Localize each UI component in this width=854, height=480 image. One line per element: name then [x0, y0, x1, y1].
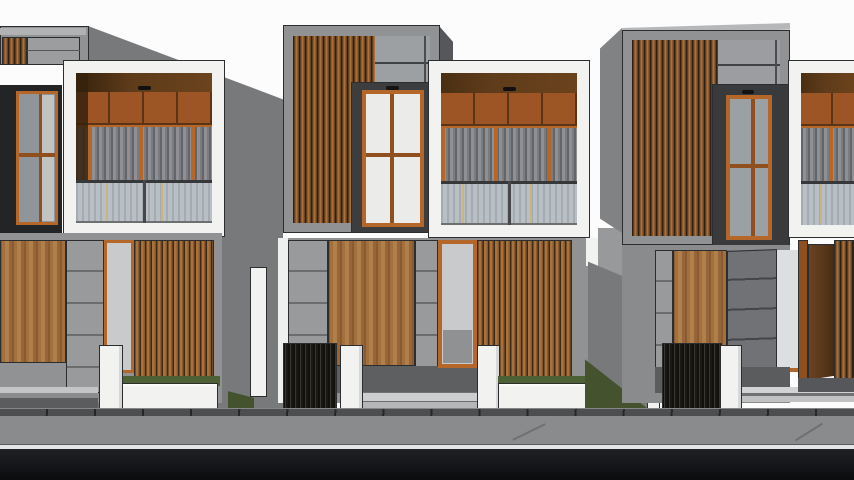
house-2-railing-center-post [508, 181, 511, 225]
house-2-balcony-post-3 [547, 126, 551, 181]
house-4-balcony-corrugated [801, 126, 854, 181]
house-2-balcony-wood-panels [441, 93, 577, 126]
gap2-post-top [586, 238, 598, 266]
house-1-window-stile [39, 94, 42, 222]
house-4-balcony-wood-panels [801, 93, 854, 126]
house-2-gate-pillar-left [340, 345, 363, 411]
render-viewport [0, 0, 854, 480]
house-3-slat-screen [632, 40, 718, 236]
house-3-upper-panel-seam-1 [718, 64, 780, 66]
asphalt-foreground [0, 449, 854, 480]
house-1-balcony-post-3 [191, 125, 195, 180]
house-4-railing-tan-line [820, 184, 822, 223]
house-2-glass-door-lower [443, 330, 472, 363]
house-1-window-pane-right [42, 95, 54, 221]
house-1-railing-tan-line-1 [106, 183, 108, 221]
house-2-dark-slat-fence [283, 343, 337, 412]
house-2-balcony-vent [503, 87, 516, 91]
house-1-window-rail [19, 153, 55, 157]
house-4-open-wood-door [808, 244, 834, 380]
house-3-step-2 [742, 396, 854, 402]
house-2-upper-panel-seam-1 [375, 62, 430, 64]
house-2-balcony-corrugated [441, 126, 577, 181]
house-1-balcony-post-2 [139, 125, 143, 180]
house-2-railing-tan-line-1 [462, 184, 464, 223]
house-2-window-stile [390, 94, 394, 223]
house-1-parapet-seam [27, 50, 80, 51]
house-1-parapet-slat-screen [2, 37, 27, 65]
house-4-balcony-post [829, 126, 833, 181]
house-1-ground-slat-screen [134, 240, 214, 381]
house-1-gate-pillar [99, 345, 123, 411]
house-1-entry-wood-door [0, 240, 66, 363]
house-2-window-rail [366, 153, 420, 157]
house-1-railing-center-post [143, 180, 146, 223]
house-1-balcony-wood-panels [76, 92, 212, 125]
house-4-glass-railing [801, 181, 854, 225]
house-1-balcony-post-1 [88, 125, 92, 180]
house-4-balcony-soffit [801, 73, 854, 93]
house-1-parapet-top-face [0, 28, 86, 35]
house-1-balcony-vent [138, 86, 151, 90]
house-4-slat-screen [834, 240, 854, 380]
house-1-balcony-corner-shadow [76, 73, 88, 180]
house-2-balcony-post-1 [441, 126, 445, 181]
house-2-step-1 [363, 392, 478, 401]
house-2-balcony-post-2 [494, 126, 498, 181]
house-3-dark-slat-fence [662, 343, 722, 413]
house-3-gate-pillar [720, 345, 742, 413]
house-4-entry-floor [798, 378, 854, 392]
gap1-fence-pillar [250, 267, 267, 397]
house-3-side-wall [600, 28, 622, 233]
house-2-slat-box-side [440, 27, 453, 60]
house-4-door-jamb [798, 240, 808, 380]
house-3-window-vent [742, 90, 754, 94]
house-1-railing-tan-line-2 [161, 183, 163, 221]
sidewalk-tiles [0, 408, 854, 416]
house-2-gate-pillar-right [477, 345, 500, 411]
road-surface [0, 416, 854, 444]
house-2-railing-tan-line-2 [530, 184, 532, 223]
house-3-window-rail [730, 164, 768, 168]
